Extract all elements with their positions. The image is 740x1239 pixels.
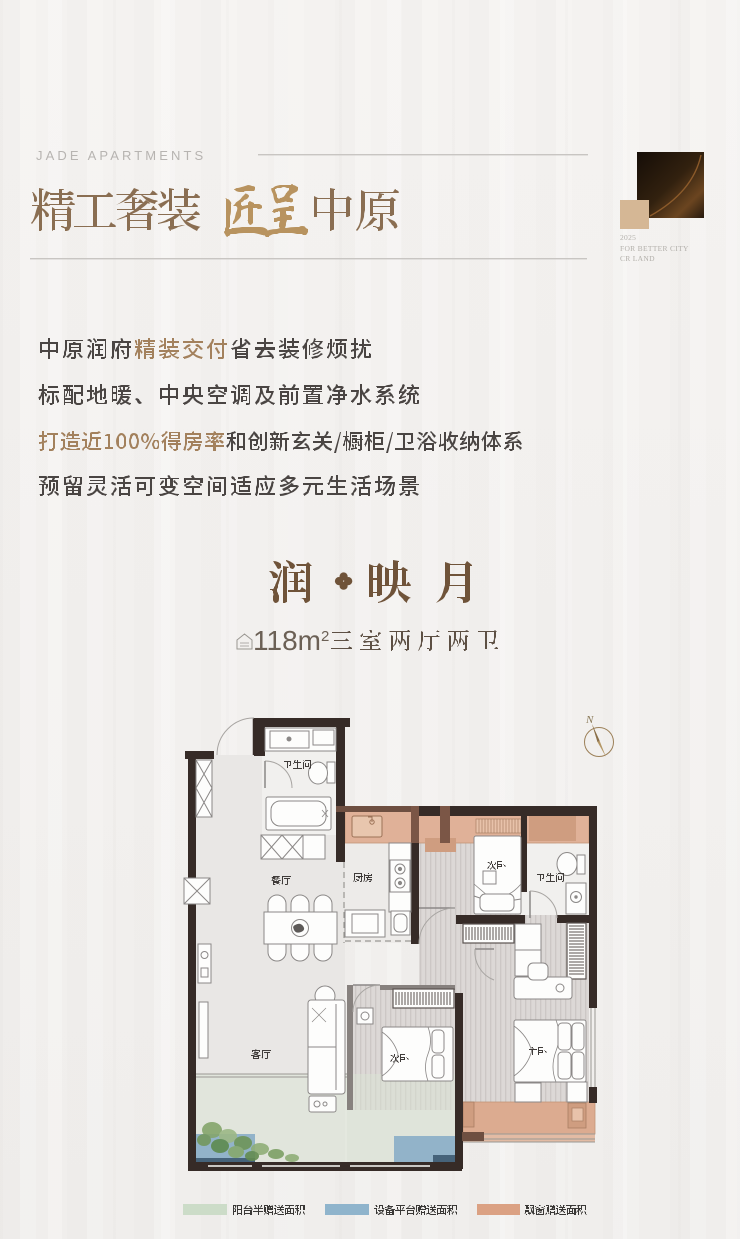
svg-text:CR LAND: CR LAND xyxy=(620,254,655,263)
svg-text:2025: 2025 xyxy=(620,233,636,242)
svg-text:N: N xyxy=(585,714,594,726)
svg-text:118m2: 118m2 xyxy=(253,625,329,656)
svg-text:FOR BETTER CITY: FOR BETTER CITY xyxy=(620,244,689,253)
svg-text:JADE APARTMENTS: JADE APARTMENTS xyxy=(36,148,206,163)
